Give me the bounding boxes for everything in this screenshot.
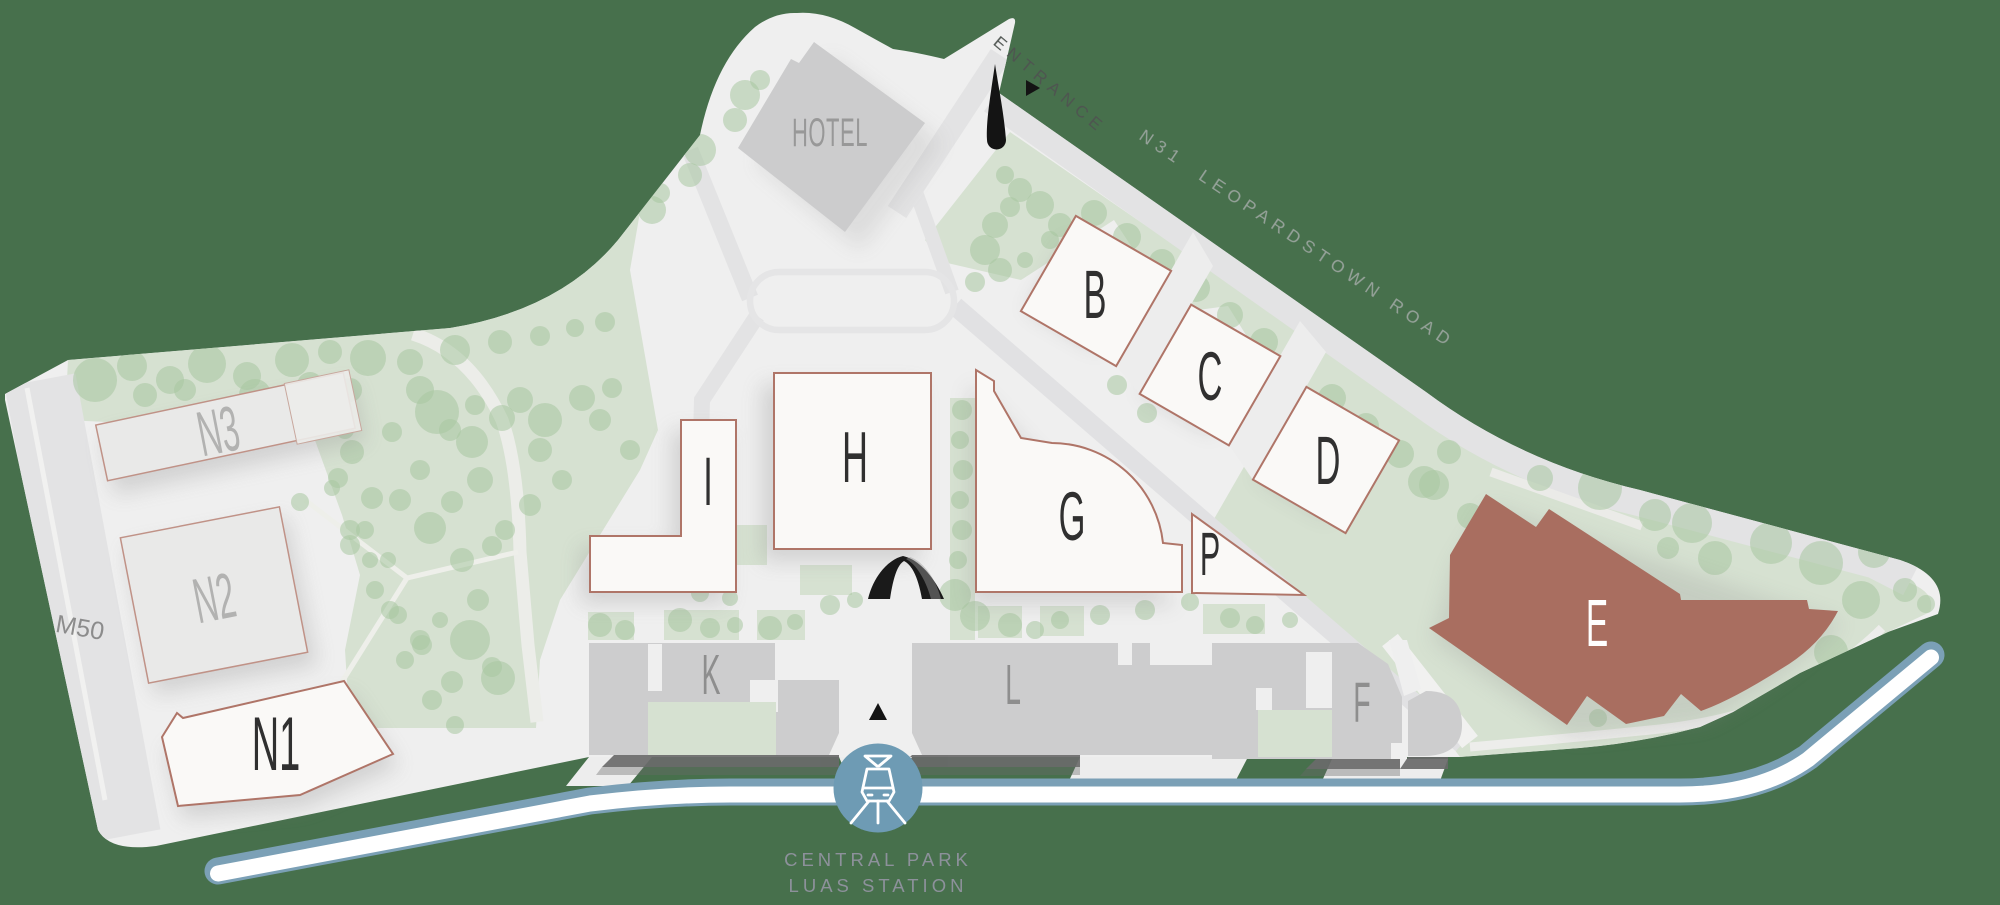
svg-text:L: L xyxy=(1005,652,1021,717)
svg-text:N1: N1 xyxy=(252,702,301,787)
svg-text:I: I xyxy=(703,443,713,520)
svg-text:P: P xyxy=(1200,521,1220,589)
svg-text:CENTRAL PARK: CENTRAL PARK xyxy=(784,849,972,870)
svg-text:LUAS STATION: LUAS STATION xyxy=(789,875,968,896)
svg-text:B: B xyxy=(1083,256,1106,333)
svg-text:HOTEL: HOTEL xyxy=(792,110,868,155)
svg-text:K: K xyxy=(701,642,720,707)
svg-text:F: F xyxy=(1353,670,1370,735)
svg-text:C: C xyxy=(1198,338,1223,415)
svg-text:D: D xyxy=(1316,422,1341,499)
svg-text:G: G xyxy=(1059,478,1086,555)
svg-text:E: E xyxy=(1586,587,1608,662)
svg-text:H: H xyxy=(842,417,868,498)
